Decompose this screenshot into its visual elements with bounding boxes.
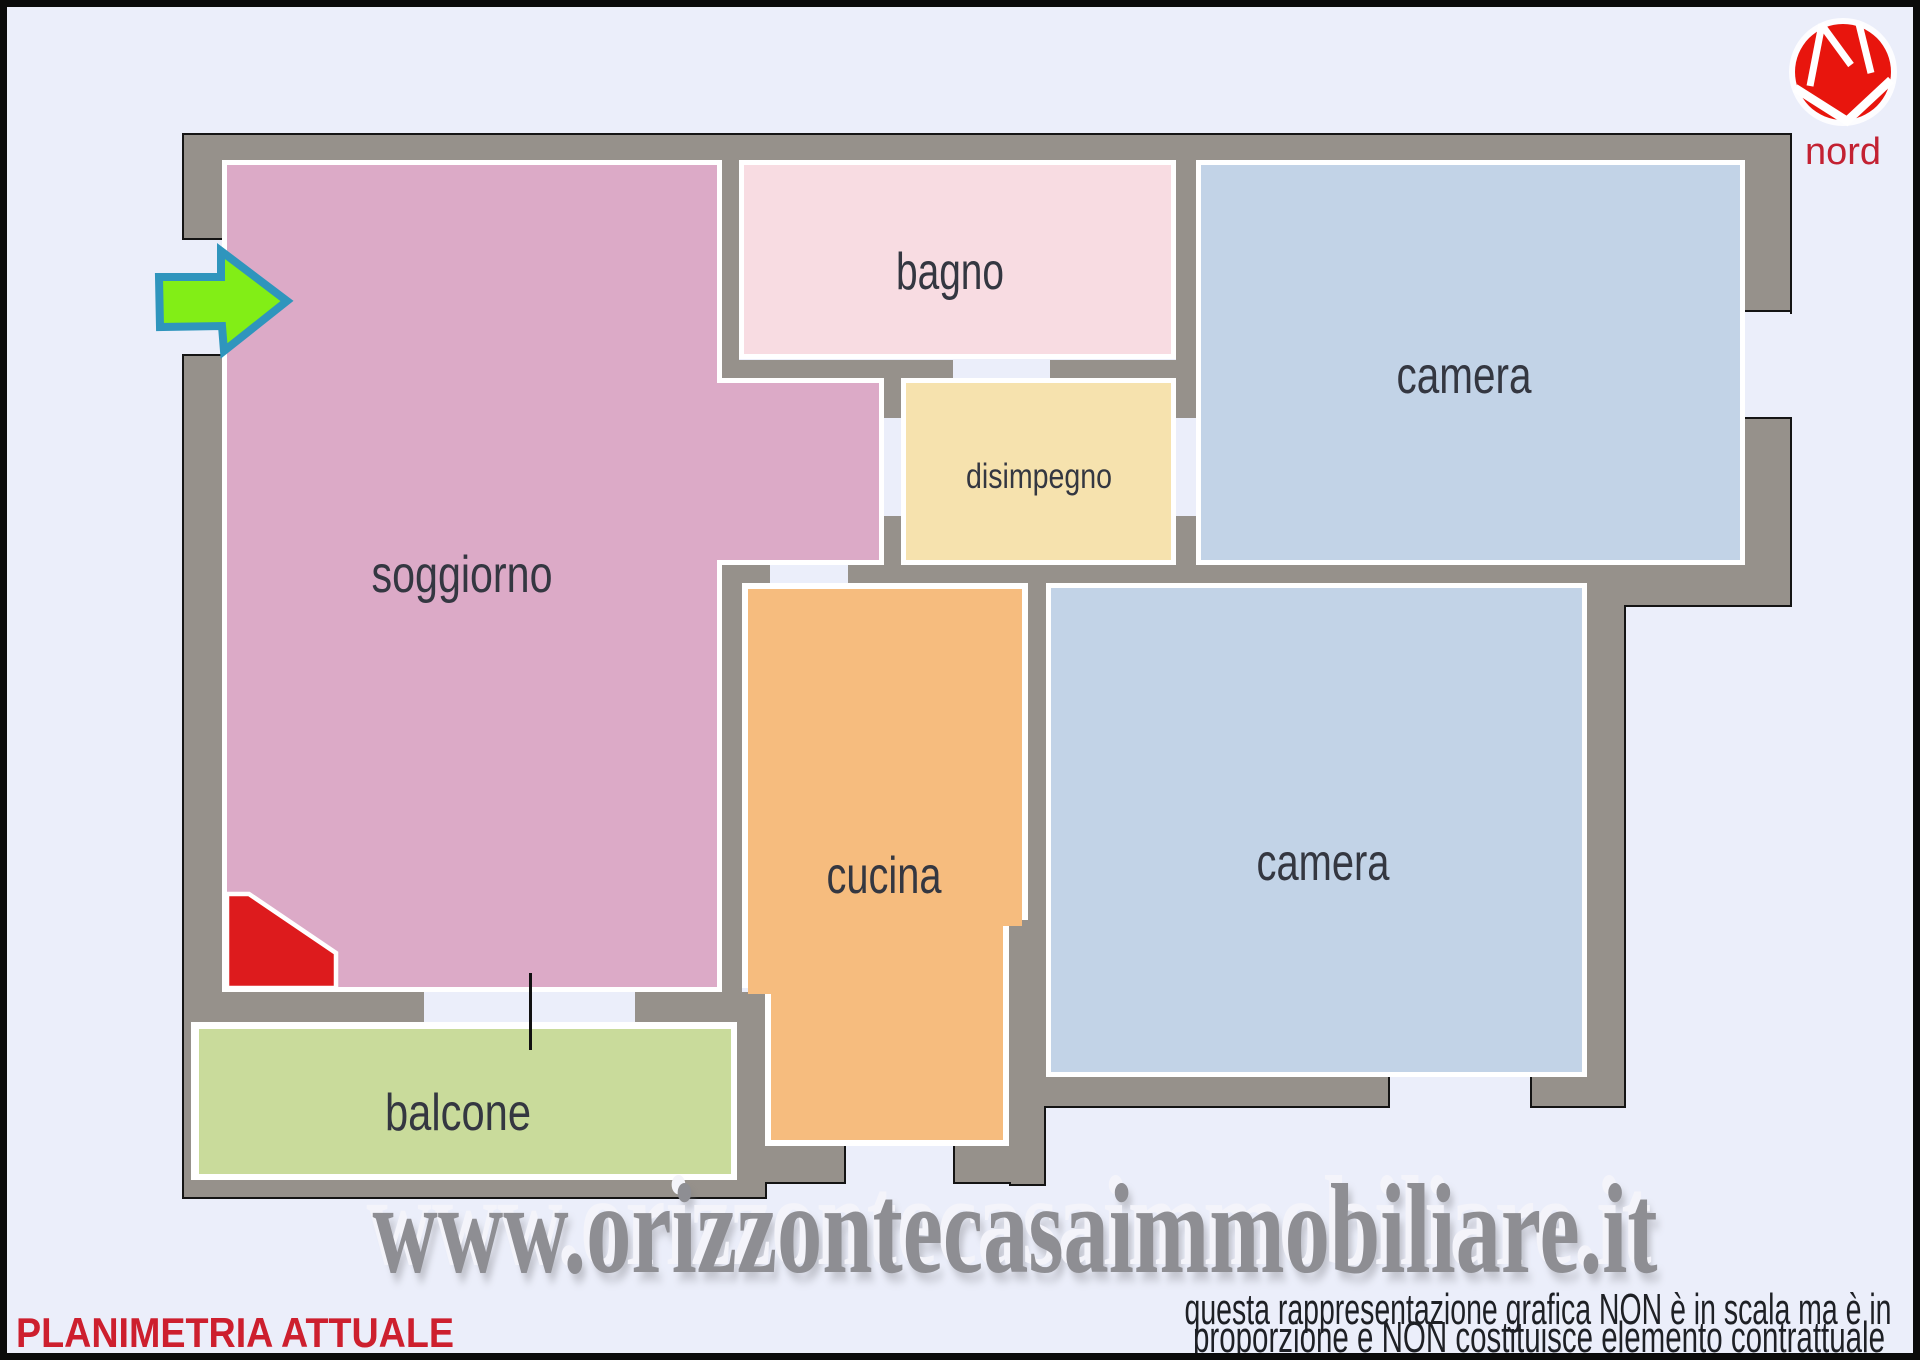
svg-text:cucina: cucina [827,847,942,905]
svg-text:bagno: bagno [896,243,1004,301]
svg-text:balcone: balcone [385,1084,531,1142]
svg-text:camera: camera [1397,347,1532,405]
svg-text:nord: nord [1805,131,1881,173]
svg-text:soggiorno: soggiorno [372,546,553,604]
svg-text:PLANIMETRIA ATTUALE: PLANIMETRIA ATTUALE [16,1309,454,1356]
svg-text:proporzione e NON costituisce: proporzione e NON costituisce elemento c… [1193,1312,1885,1360]
svg-text:camera: camera [1257,834,1390,892]
svg-text:disimpegno: disimpegno [966,457,1112,496]
svg-text:www.orizzontecasaimmobiliare.i: www.orizzontecasaimmobiliare.it [373,1159,1658,1301]
